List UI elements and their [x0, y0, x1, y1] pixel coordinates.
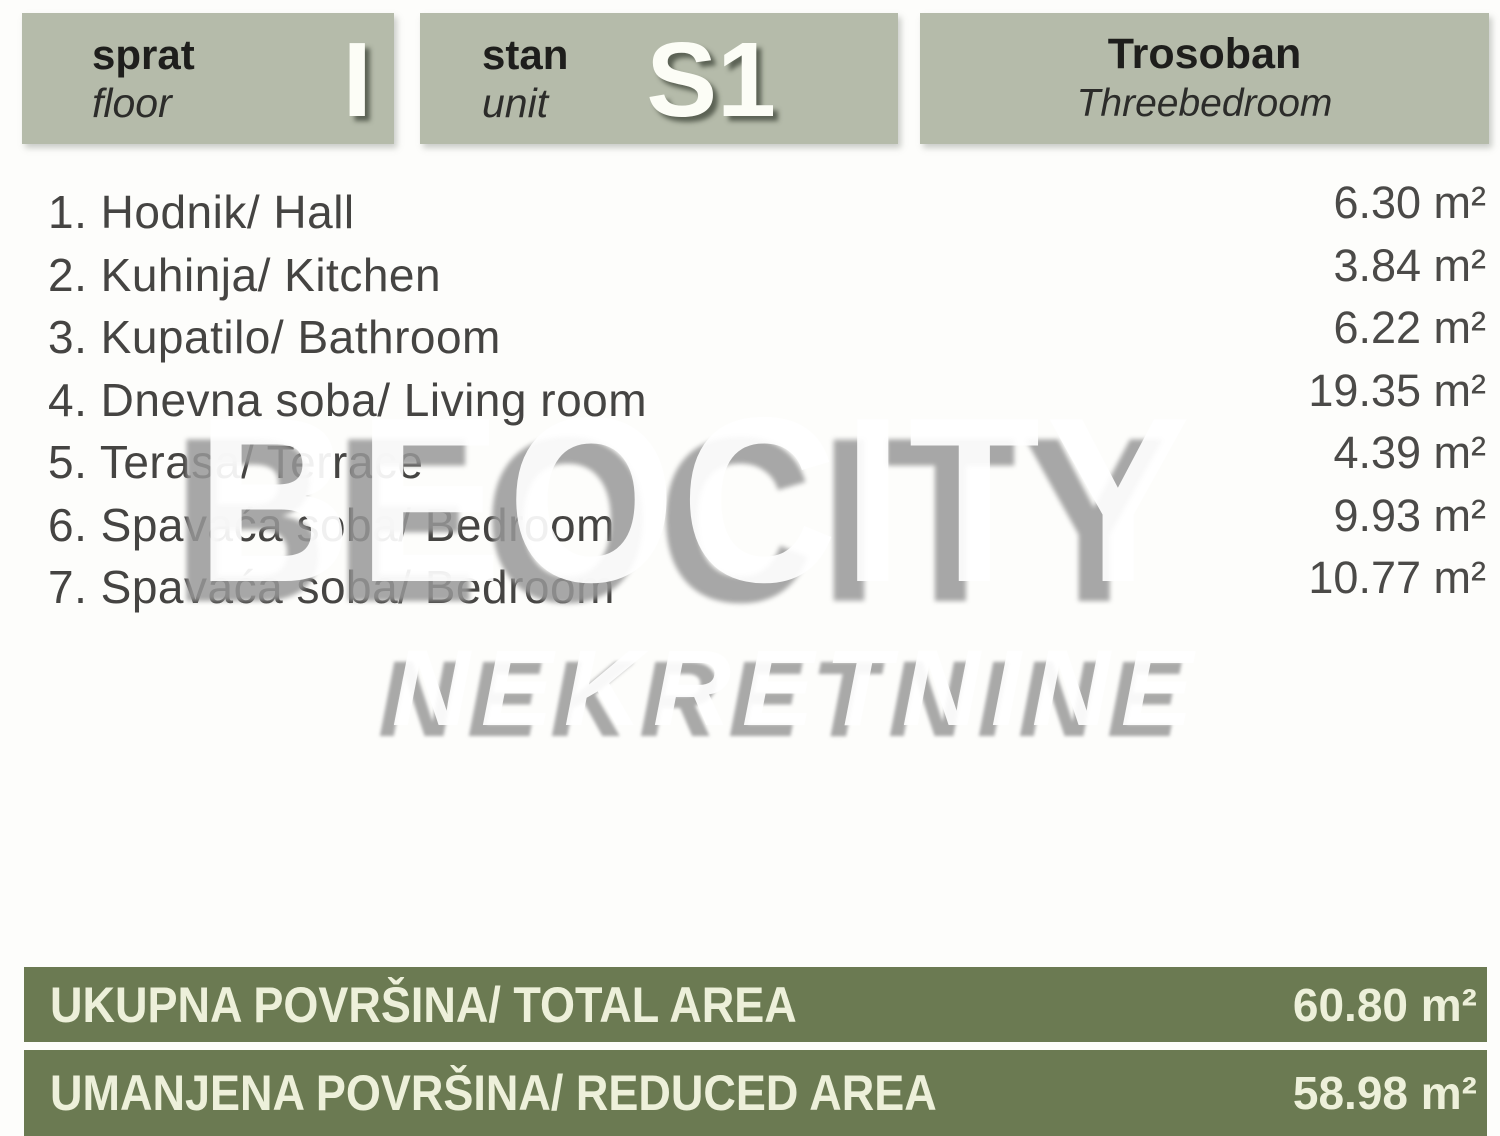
- apartment-type-sr: Trosoban: [1108, 29, 1302, 81]
- room-row: 7. Spavaća soba/ Bedroom 10.77 m²: [48, 556, 1486, 619]
- total-area-bar: UKUPNA POVRŠINA/ TOTAL AREA 60.80 m²: [24, 967, 1487, 1042]
- room-row: 1. Hodnik/ Hall 6.30 m²: [48, 181, 1486, 244]
- room-area: 4.39 m²: [1333, 427, 1486, 479]
- reduced-area-bar: UMANJENA POVRŠINA/ REDUCED AREA 58.98 m²: [24, 1050, 1487, 1136]
- room-label: 2. Kuhinja/ Kitchen: [48, 248, 441, 302]
- room-label: 6. Spavaća soba/ Bedroom: [48, 498, 615, 552]
- room-row: 3. Kupatilo/ Bathroom 6.22 m²: [48, 306, 1486, 369]
- room-area: 10.77 m²: [1308, 552, 1486, 604]
- floor-box: sprat floor I: [22, 13, 394, 144]
- room-area: 3.84 m²: [1333, 240, 1486, 292]
- reduced-area-label: UMANJENA POVRŠINA/ REDUCED AREA: [50, 1064, 937, 1122]
- floor-label-sr: sprat: [92, 30, 195, 80]
- apartment-type-box: Trosoban Threebedroom: [920, 13, 1489, 144]
- total-area-value: 60.80 m²: [1293, 978, 1477, 1032]
- room-label: 7. Spavaća soba/ Bedroom: [48, 560, 615, 614]
- floor-label-en: floor: [92, 79, 195, 127]
- unit-box: stan unit S1: [420, 13, 898, 144]
- room-row: 2. Kuhinja/ Kitchen 3.84 m²: [48, 244, 1486, 307]
- room-row: 4. Dnevna soba/ Living room 19.35 m²: [48, 369, 1486, 432]
- room-area: 19.35 m²: [1308, 365, 1486, 417]
- room-label: 1. Hodnik/ Hall: [48, 185, 355, 239]
- room-area: 6.30 m²: [1333, 177, 1486, 229]
- floor-labels: sprat floor: [92, 30, 195, 128]
- reduced-area-value: 58.98 m²: [1293, 1066, 1477, 1120]
- room-row: 5. Terasa/ Terrace 4.39 m²: [48, 431, 1486, 494]
- room-label: 5. Terasa/ Terrace: [48, 435, 424, 489]
- apartment-type-en: Threebedroom: [1077, 81, 1333, 128]
- watermark-subtitle: NEKRETNINE: [392, 634, 1204, 742]
- room-row: 6. Spavaća soba/ Bedroom 9.93 m²: [48, 494, 1486, 557]
- unit-labels: stan unit: [482, 30, 568, 128]
- room-label: 4. Dnevna soba/ Living room: [48, 373, 647, 427]
- total-area-label: UKUPNA POVRŠINA/ TOTAL AREA: [50, 976, 797, 1034]
- room-list: 1. Hodnik/ Hall 6.30 m² 2. Kuhinja/ Kitc…: [48, 181, 1486, 619]
- unit-value: S1: [646, 27, 776, 133]
- unit-label-en: unit: [482, 79, 568, 127]
- room-area: 6.22 m²: [1333, 302, 1486, 354]
- unit-label-sr: stan: [482, 30, 568, 80]
- room-area: 9.93 m²: [1333, 490, 1486, 542]
- room-label: 3. Kupatilo/ Bathroom: [48, 310, 501, 364]
- floor-value: I: [343, 27, 372, 133]
- apartment-type-labels: Trosoban Threebedroom: [1077, 29, 1333, 127]
